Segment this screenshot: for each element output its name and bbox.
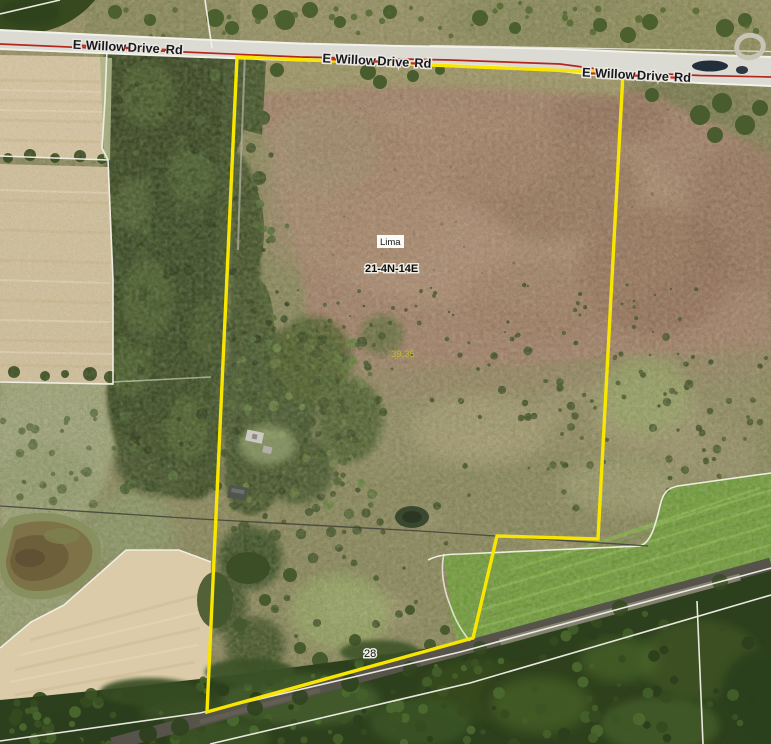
svg-text:21-4N-14E: 21-4N-14E — [365, 263, 418, 275]
svg-text:Drive: Drive — [637, 67, 670, 84]
svg-text:Willow: Willow — [85, 37, 126, 54]
svg-text:Lima: Lima — [380, 237, 401, 248]
svg-text:28: 28 — [364, 648, 376, 660]
svg-text:E: E — [582, 65, 592, 80]
svg-text:Rd: Rd — [674, 69, 692, 85]
svg-text:Willow: Willow — [335, 51, 376, 68]
svg-text:Drive: Drive — [377, 53, 410, 70]
svg-text:E: E — [322, 50, 332, 65]
svg-text:E: E — [72, 37, 82, 52]
svg-text:Rd: Rd — [414, 55, 432, 71]
svg-text:Drive: Drive — [127, 40, 160, 57]
svg-text:39.35: 39.35 — [391, 349, 415, 360]
svg-text:Rd: Rd — [165, 41, 183, 57]
svg-text:Willow: Willow — [595, 65, 636, 82]
